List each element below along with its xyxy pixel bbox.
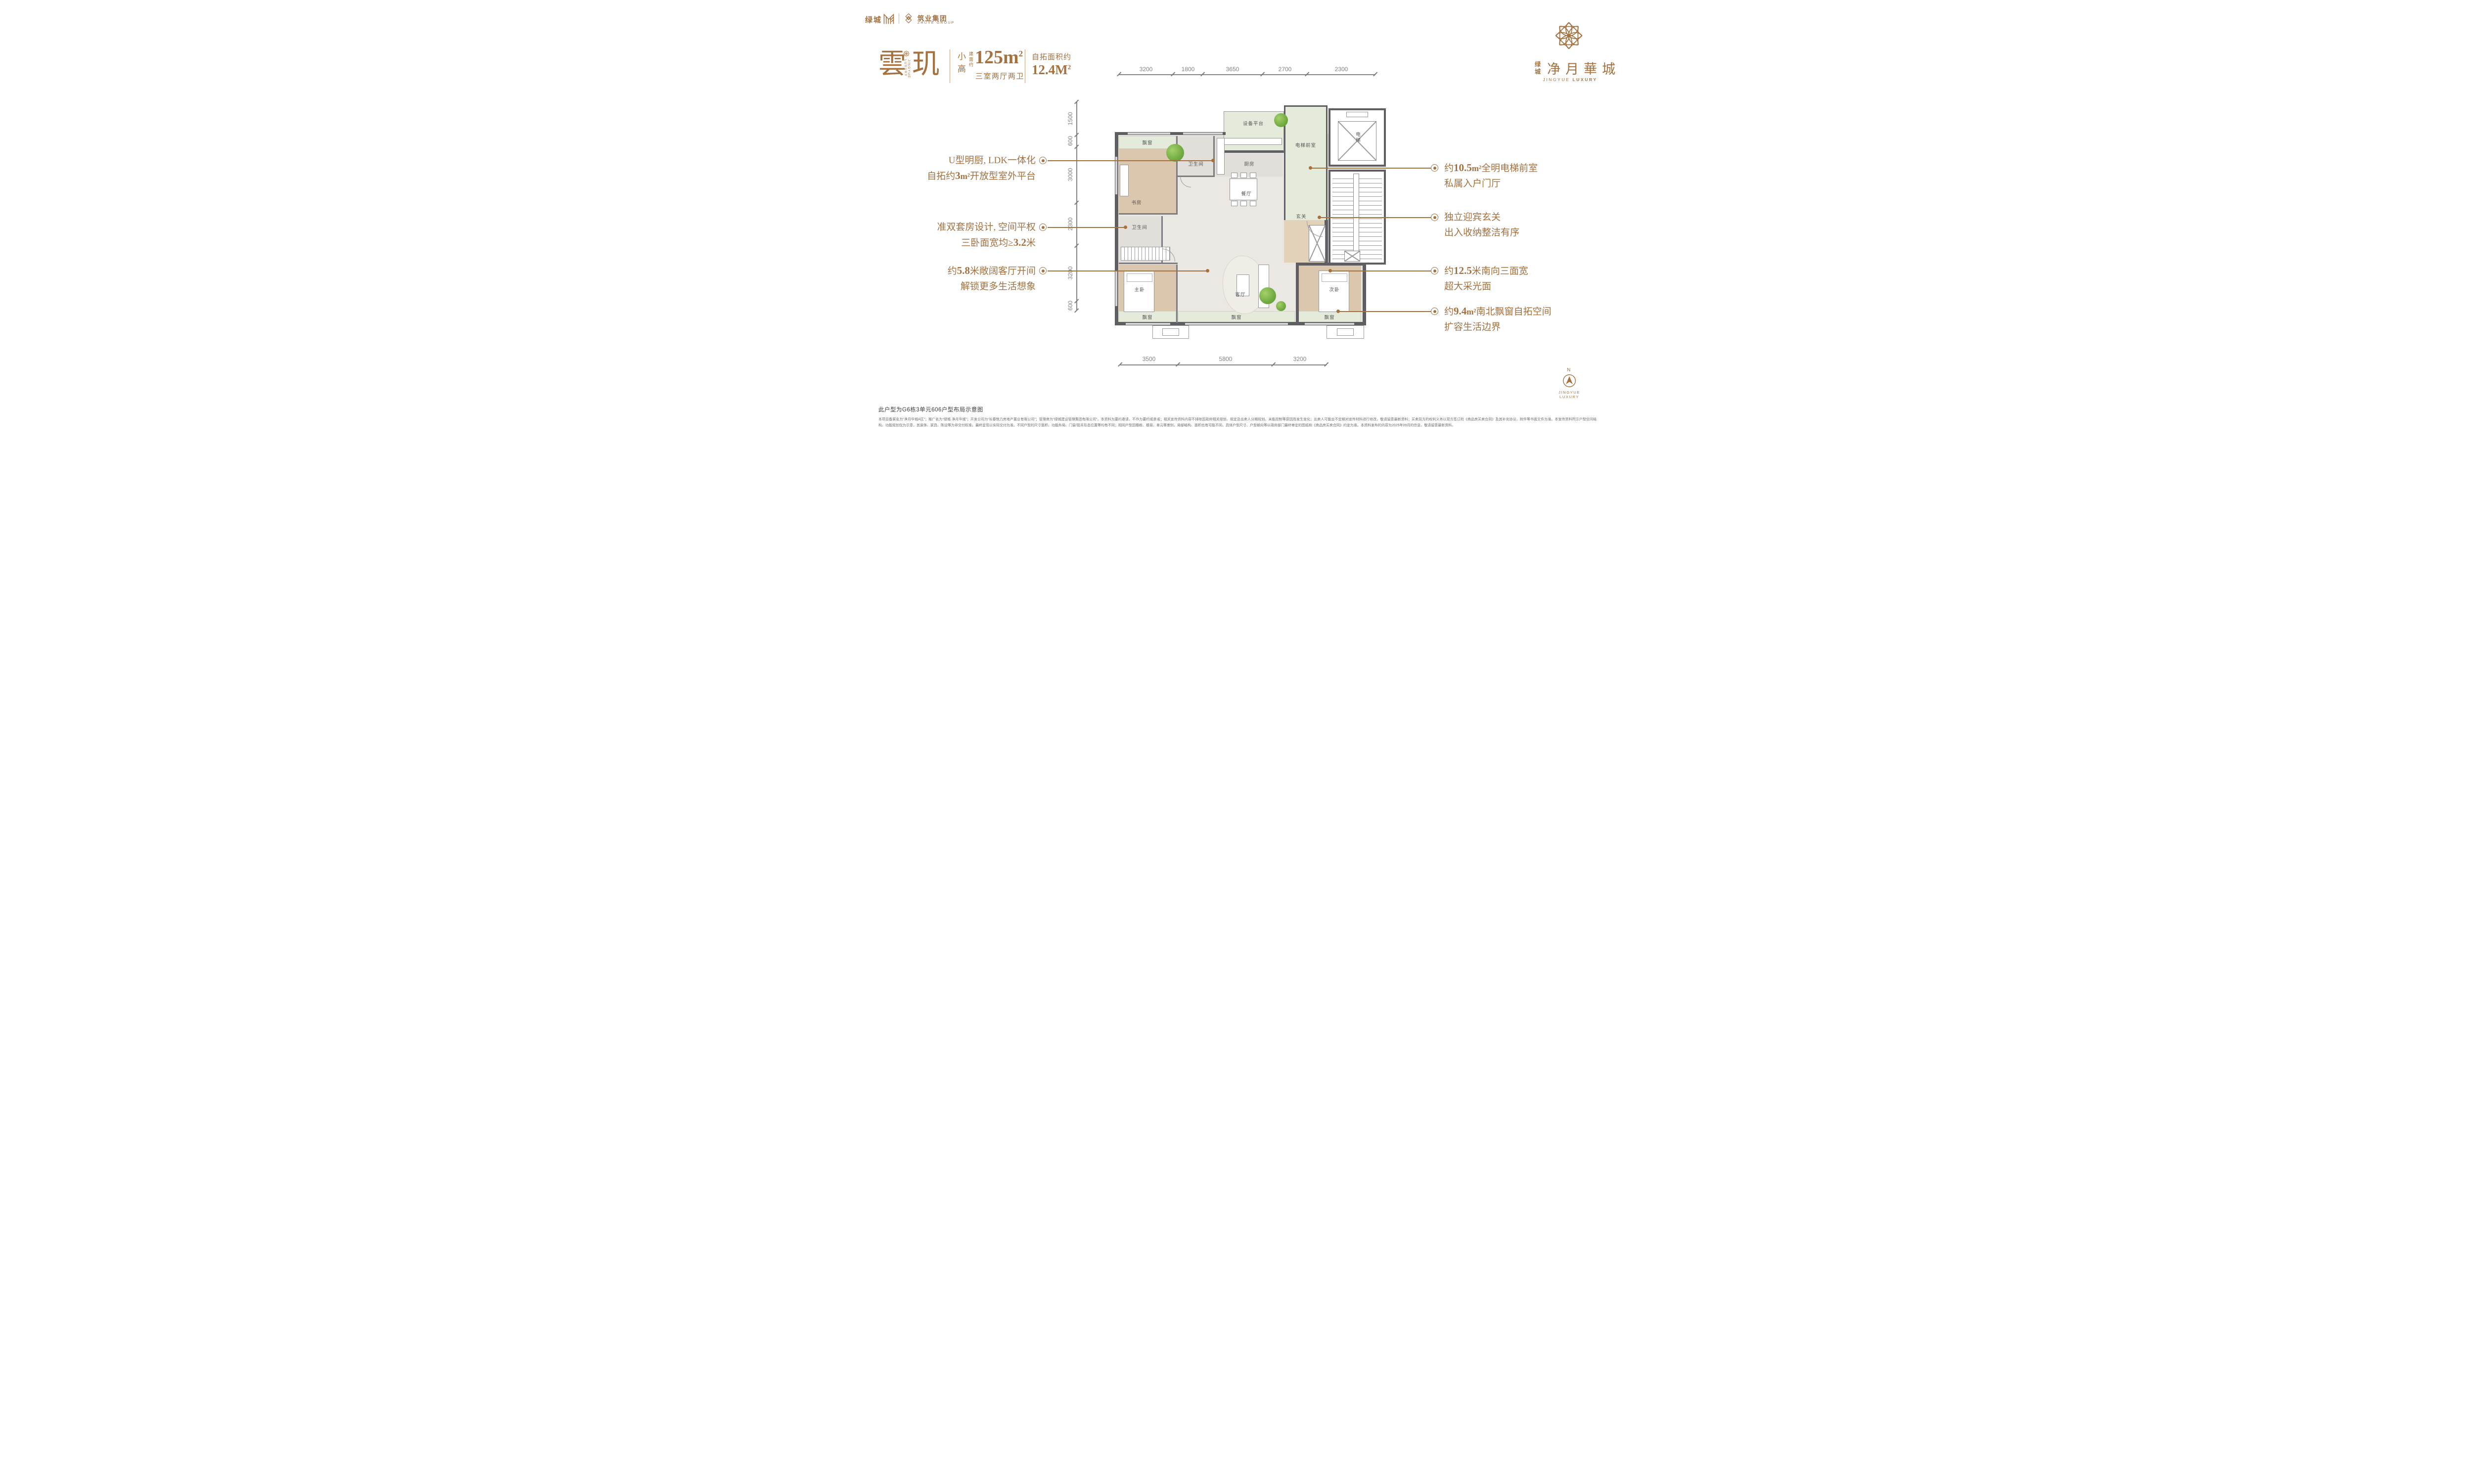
dining-chair bbox=[1250, 173, 1256, 178]
greentown-logo-text: 绿城 bbox=[865, 14, 882, 25]
title-divider-2 bbox=[1025, 49, 1025, 83]
callout-line: 自拓约3m²开放型室外平台 bbox=[849, 168, 1036, 184]
room-label-master: 主卧 bbox=[1134, 286, 1145, 293]
callout-south-facing: 约12.5米南向三面宽 超大采光面 bbox=[1444, 263, 1622, 294]
title-flower-icon bbox=[903, 50, 910, 57]
callout-marker bbox=[1039, 224, 1047, 231]
callout-line: 独立迎宾玄关 bbox=[1444, 210, 1622, 225]
callout-line: 出入收纳整洁有序 bbox=[1444, 225, 1622, 240]
title-expand-value: 12.4M bbox=[1032, 62, 1068, 77]
callout-kitchen: U型明厨, LDK一体化 自拓约3m²开放型室外平台 bbox=[849, 153, 1036, 184]
window-bottom-1 bbox=[1126, 323, 1170, 325]
window-bottom-3 bbox=[1305, 323, 1354, 325]
callout-foyer: 独立迎宾玄关 出入收纳整洁有序 bbox=[1444, 210, 1622, 240]
title-char-1: 雲 bbox=[878, 48, 906, 80]
room-label-lobby: 电梯前室 bbox=[1295, 141, 1316, 148]
title-vertical-en: JINGYUE LUXURY bbox=[904, 59, 911, 85]
title-rooms: 三室两厅两卫 bbox=[975, 71, 1024, 81]
greentown-mark-icon bbox=[882, 12, 895, 25]
room-label-equipment: 设备平台 bbox=[1243, 120, 1264, 127]
dim-top-4: 2300 bbox=[1327, 66, 1356, 73]
kitchen-counter bbox=[1217, 138, 1282, 145]
room-label-bay-b1: 飘窗 bbox=[1142, 314, 1152, 320]
ac-platform-left bbox=[1152, 325, 1189, 339]
zhuye-group-en: ZHUYE GROUP bbox=[917, 21, 955, 25]
dim-bottom-0: 3500 bbox=[1134, 356, 1164, 362]
project-logo-en-bold: LUXURY bbox=[1572, 77, 1597, 82]
window-left-study bbox=[1115, 157, 1117, 194]
dim-left-4: 3200 bbox=[1067, 262, 1074, 284]
jingyue-flower-icon bbox=[1553, 20, 1585, 51]
compass-icon bbox=[1562, 374, 1576, 388]
callout-connector bbox=[1048, 227, 1126, 228]
callout-line: 超大采光面 bbox=[1444, 279, 1622, 294]
room-label-dining: 餐厅 bbox=[1241, 190, 1251, 197]
dim-left-0: 1500 bbox=[1067, 108, 1074, 130]
ac-platform-right bbox=[1327, 325, 1364, 339]
dining-chair bbox=[1250, 201, 1256, 206]
callout-connector bbox=[1338, 311, 1431, 312]
elevator-lobby bbox=[1284, 105, 1328, 220]
room-label-living: 客厅 bbox=[1235, 291, 1245, 298]
title-expand-sup: 2 bbox=[1068, 63, 1071, 71]
callout-line: 约10.5m²全明电梯前室 bbox=[1444, 160, 1622, 176]
room-label-bath1: 卫生间 bbox=[1188, 160, 1204, 167]
partition-master-top bbox=[1119, 263, 1178, 264]
callout-dot bbox=[1206, 269, 1209, 272]
callout-marker bbox=[1431, 164, 1438, 172]
callout-dot bbox=[1124, 225, 1127, 229]
dim-top-1: 1800 bbox=[1173, 66, 1203, 73]
disclaimer: 本项目备案名为“净月华城A区”；推广名为“绿城·净月华城”；开发公司为“长春筑力… bbox=[878, 417, 1597, 428]
unit-note: 此户型为G6栋3单元606户型布局示意图 bbox=[878, 405, 983, 413]
callout-marker bbox=[1039, 157, 1047, 164]
partition-master-right bbox=[1176, 265, 1178, 323]
study-desk bbox=[1120, 165, 1129, 196]
dining-chair bbox=[1231, 201, 1237, 206]
callout-line: 私属入户门厅 bbox=[1444, 176, 1622, 191]
wall-bedroom-left bbox=[1296, 263, 1299, 323]
project-logo-en: JINGYUE LUXURY bbox=[1534, 77, 1606, 82]
dim-left-3: 2300 bbox=[1067, 213, 1074, 235]
dim-top-2: 3650 bbox=[1218, 66, 1247, 73]
callout-connector bbox=[1048, 270, 1209, 271]
dim-left-1: 600 bbox=[1067, 130, 1074, 152]
dim-top-3: 2700 bbox=[1270, 66, 1300, 73]
window-bottom-2 bbox=[1185, 323, 1288, 325]
dim-bottom-2: 3200 bbox=[1285, 356, 1315, 362]
callout-line: 解锁更多生活想象 bbox=[849, 279, 1036, 294]
room-label-elevator: 电梯 bbox=[1354, 132, 1361, 143]
callout-marker bbox=[1039, 267, 1047, 274]
room-label-bath2: 卫生间 bbox=[1132, 224, 1147, 230]
dining-chair bbox=[1240, 201, 1247, 206]
dim-line-top bbox=[1119, 74, 1375, 75]
callout-line: 准双套房设计, 空间平权 bbox=[849, 220, 1036, 235]
callout-connector bbox=[1048, 160, 1213, 161]
plant bbox=[1276, 301, 1286, 311]
title-area-sup: 2 bbox=[1019, 49, 1023, 58]
callout-line: 约9.4m²南北飘窗自拓空间 bbox=[1444, 304, 1624, 319]
callout-line: 三卧面宽均≥3.2米 bbox=[849, 235, 1036, 251]
wall-bedroom-top bbox=[1296, 263, 1366, 266]
zhuye-diamond-icon bbox=[903, 13, 914, 24]
dining-chair bbox=[1240, 173, 1247, 178]
callout-line: U型明厨, LDK一体化 bbox=[849, 153, 1036, 168]
callout-bay-windows: 约9.4m²南北飘窗自拓空间 扩容生活边界 bbox=[1444, 304, 1624, 335]
room-label-bay-b3: 飘窗 bbox=[1324, 314, 1334, 320]
partition-study-bottom bbox=[1119, 213, 1178, 215]
callout-dot bbox=[1328, 269, 1332, 272]
plant bbox=[1259, 287, 1276, 304]
header-divider bbox=[899, 13, 899, 24]
window-left-master bbox=[1115, 271, 1117, 306]
project-logo-name: 净月華城 bbox=[1547, 58, 1620, 78]
title-expand: 12.4M2 bbox=[1032, 62, 1071, 78]
room-label-bay-b2: 飘窗 bbox=[1231, 314, 1241, 320]
dim-left-5: 600 bbox=[1067, 295, 1074, 316]
dim-line-bottom bbox=[1120, 364, 1327, 365]
title-class: 小高 bbox=[955, 52, 967, 82]
callout-dot bbox=[1336, 310, 1340, 313]
title-area-prefix: 建面约 bbox=[968, 51, 974, 70]
callout-lobby: 约10.5m²全明电梯前室 私属入户门厅 bbox=[1444, 160, 1622, 191]
ac-unit bbox=[1337, 328, 1354, 336]
callout-connector bbox=[1311, 168, 1431, 169]
dim-left-2: 3000 bbox=[1067, 164, 1074, 185]
title-divider-1 bbox=[950, 49, 950, 83]
room-label-second: 次卧 bbox=[1329, 286, 1339, 293]
title-area-value: 125m bbox=[975, 47, 1019, 68]
window-top-kitchen bbox=[1183, 133, 1223, 135]
poster-canvas: 绿城 筑业集团 ZHUYE GROUP 绿城 净月華城 JINGYUE LUXU… bbox=[849, 0, 1624, 436]
room-label-kitchen: 厨房 bbox=[1244, 160, 1254, 167]
callout-marker bbox=[1431, 308, 1438, 315]
room-label-study: 书房 bbox=[1131, 199, 1142, 206]
room-label-bay-tl: 飘窗 bbox=[1142, 139, 1152, 146]
plant bbox=[1274, 113, 1288, 127]
callout-line: 扩容生活边界 bbox=[1444, 319, 1624, 335]
dining-table bbox=[1230, 179, 1257, 200]
wall-right-low bbox=[1363, 263, 1366, 325]
plant bbox=[1166, 144, 1184, 162]
pillow bbox=[1322, 273, 1347, 282]
callout-marker bbox=[1431, 214, 1438, 221]
floor-plan: 飘窗 书房 卫生间 厨房 设备平台 电梯前室 电梯 餐厅 玄关 卫生间 主卧 客… bbox=[1111, 101, 1398, 344]
ac-unit bbox=[1162, 328, 1179, 336]
title-area: 125m2 bbox=[975, 47, 1023, 67]
callout-dot bbox=[1211, 159, 1215, 162]
compass-n-label: N bbox=[1567, 367, 1570, 373]
callout-line: 约5.8米敞阔客厅开间 bbox=[849, 263, 1036, 279]
room-label-foyer: 玄关 bbox=[1296, 213, 1306, 220]
callout-line: 约12.5米南向三面宽 bbox=[1444, 263, 1622, 279]
callout-living: 约5.8米敞阔客厅开间 解锁更多生活想象 bbox=[849, 263, 1036, 294]
elevator-counterweight bbox=[1346, 112, 1368, 117]
callout-connector bbox=[1330, 270, 1431, 271]
partition-bath1-right bbox=[1213, 136, 1215, 177]
window-top-study bbox=[1128, 133, 1170, 135]
title-expand-label: 自拓面积约 bbox=[1032, 51, 1071, 62]
callout-dot bbox=[1309, 166, 1312, 170]
title-char-2: 玑 bbox=[912, 48, 940, 80]
dining-chair bbox=[1231, 173, 1237, 178]
callout-marker bbox=[1431, 267, 1438, 274]
callout-connector bbox=[1320, 217, 1431, 218]
callout-dot bbox=[1318, 216, 1321, 219]
dim-bottom-1: 5800 bbox=[1211, 356, 1240, 362]
project-logo-small: 绿城 bbox=[1535, 61, 1542, 76]
dim-top-0: 3200 bbox=[1131, 66, 1161, 73]
project-logo-en-regular: JINGYUE bbox=[1543, 77, 1570, 82]
bedroom-cabinet bbox=[1344, 251, 1360, 262]
compass-brand: JINGYUE LUXURY bbox=[1553, 390, 1586, 399]
pillow bbox=[1127, 273, 1152, 282]
kitchen-counter-side bbox=[1217, 138, 1225, 175]
callout-suites: 准双套房设计, 空间平权 三卧面宽均≥3.2米 bbox=[849, 220, 1036, 251]
